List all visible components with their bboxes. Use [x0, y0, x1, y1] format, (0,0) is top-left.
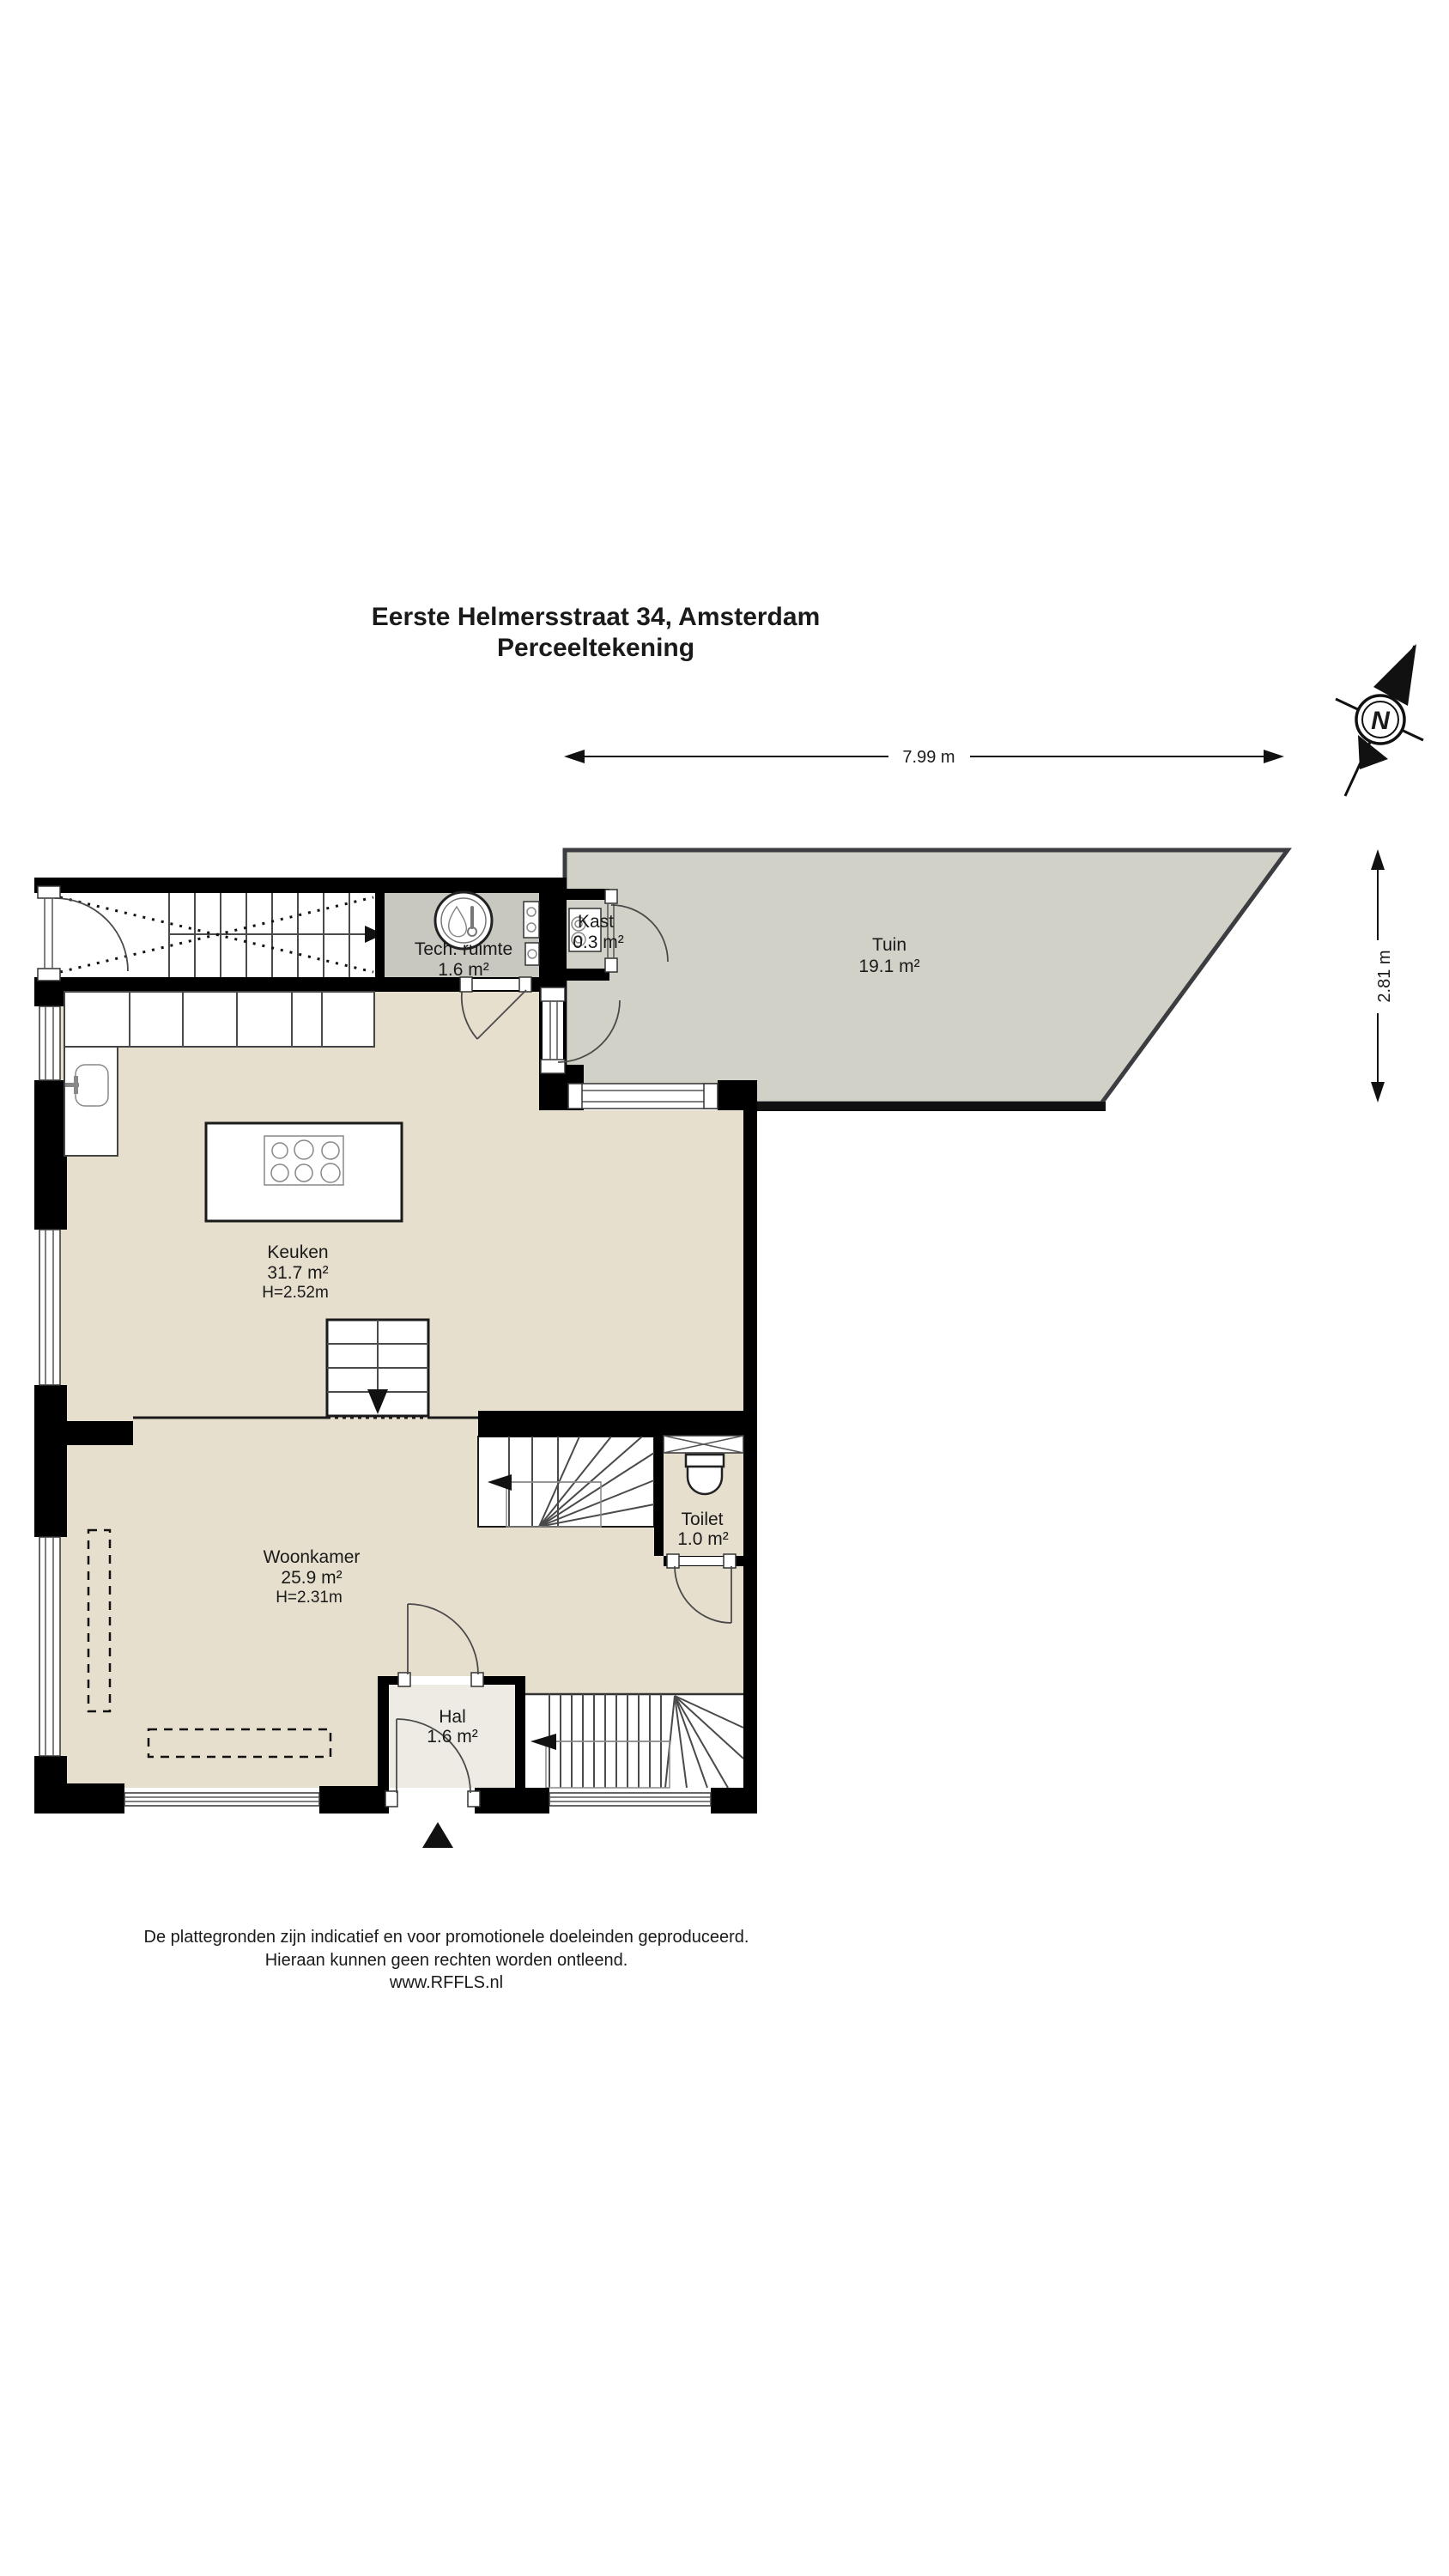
- keuken-height: H=2.52m: [262, 1284, 329, 1302]
- window-left-1: [39, 1006, 60, 1080]
- kast-area: 0.3 m²: [573, 933, 624, 952]
- footer-line-3: www.RFFLS.nl: [389, 1973, 503, 1992]
- woonkamer-area: 25.9 m²: [281, 1568, 342, 1588]
- faucet: [74, 1076, 78, 1094]
- window-tuin: [568, 1084, 718, 1109]
- sink-cabinet: [64, 1047, 118, 1156]
- footer-line-2: Hieraan kunnen geen rechten worden ontle…: [265, 1951, 628, 1970]
- footer-line-1: De plattegronden zijn indicatief en voor…: [144, 1928, 749, 1947]
- tuin-label: Tuin: [872, 935, 906, 955]
- page-title: Eerste Helmersstraat 34, Amsterdam: [372, 603, 821, 631]
- compass: N: [1336, 644, 1423, 796]
- toilet-label: Toilet: [681, 1510, 723, 1529]
- toilet-area: 1.0 m²: [677, 1529, 729, 1549]
- footer: De plattegronden zijn indicatief en voor…: [144, 1928, 749, 1992]
- woonkamer-height: H=2.31m: [276, 1589, 343, 1607]
- dimension-width-label: 7.99 m: [902, 748, 955, 767]
- tuin-area: 19.1 m²: [858, 957, 919, 976]
- garden-wall: [738, 1102, 1106, 1111]
- kast-label: Kast: [578, 912, 614, 932]
- tech-label: Tech. ruimte: [415, 939, 512, 959]
- tech-area: 1.6 m²: [438, 960, 489, 980]
- entrance-arrow: [422, 1822, 453, 1848]
- window-left-3: [39, 1537, 60, 1756]
- floorplan-drawing: Eerste Helmersstraat 34, Amsterdam Perce…: [0, 0, 1449, 2576]
- floorplan-page: Eerste Helmersstraat 34, Amsterdam Perce…: [0, 0, 1449, 2576]
- toilet-fixture: [686, 1455, 724, 1494]
- winder-stairs: [478, 1437, 654, 1527]
- page-subtitle: Perceeltekening: [497, 634, 694, 662]
- window-bottom-2: [549, 1793, 711, 1806]
- kitchen-island: [206, 1123, 402, 1221]
- dimension-depth-label: 2.81 m: [1375, 950, 1394, 1002]
- keuken-label: Keuken: [267, 1242, 328, 1262]
- tuin-room: [565, 850, 1288, 1111]
- window-bottom-1: [124, 1793, 319, 1806]
- keuken-stairs: [327, 1320, 428, 1416]
- kitchen-counter: [64, 992, 374, 1047]
- hal-area: 1.6 m²: [427, 1727, 478, 1747]
- window-left-2: [39, 1230, 60, 1385]
- woonkamer-label: Woonkamer: [264, 1547, 361, 1567]
- dimension-width: 7.99 m: [564, 748, 1284, 767]
- dimension-depth: 2.81 m: [1371, 849, 1394, 1103]
- compass-letter: N: [1371, 707, 1391, 735]
- toilet-shaft: [664, 1436, 743, 1453]
- keuken-area: 31.7 m²: [267, 1263, 328, 1283]
- hal-stairs: [525, 1694, 743, 1788]
- hal-label: Hal: [439, 1707, 466, 1727]
